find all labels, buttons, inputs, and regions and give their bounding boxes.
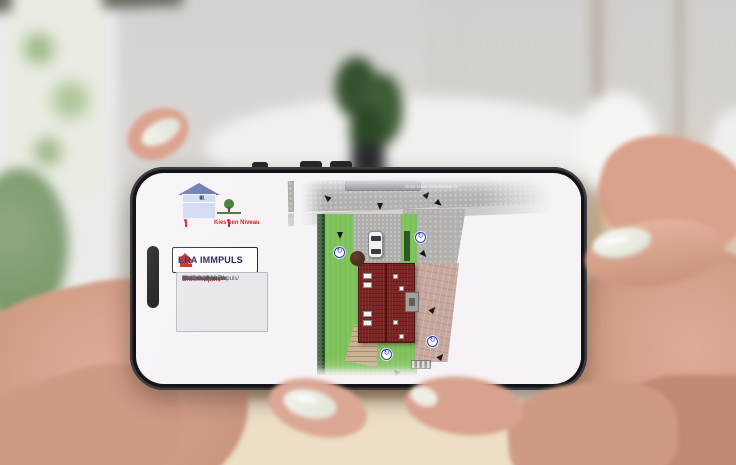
- right-hand-grip: [504, 376, 683, 465]
- scene-photo: 1 0 -1 Kies een Niveau ERA ERA IMMPULS: [0, 0, 736, 465]
- hands-in-front: [0, 0, 736, 465]
